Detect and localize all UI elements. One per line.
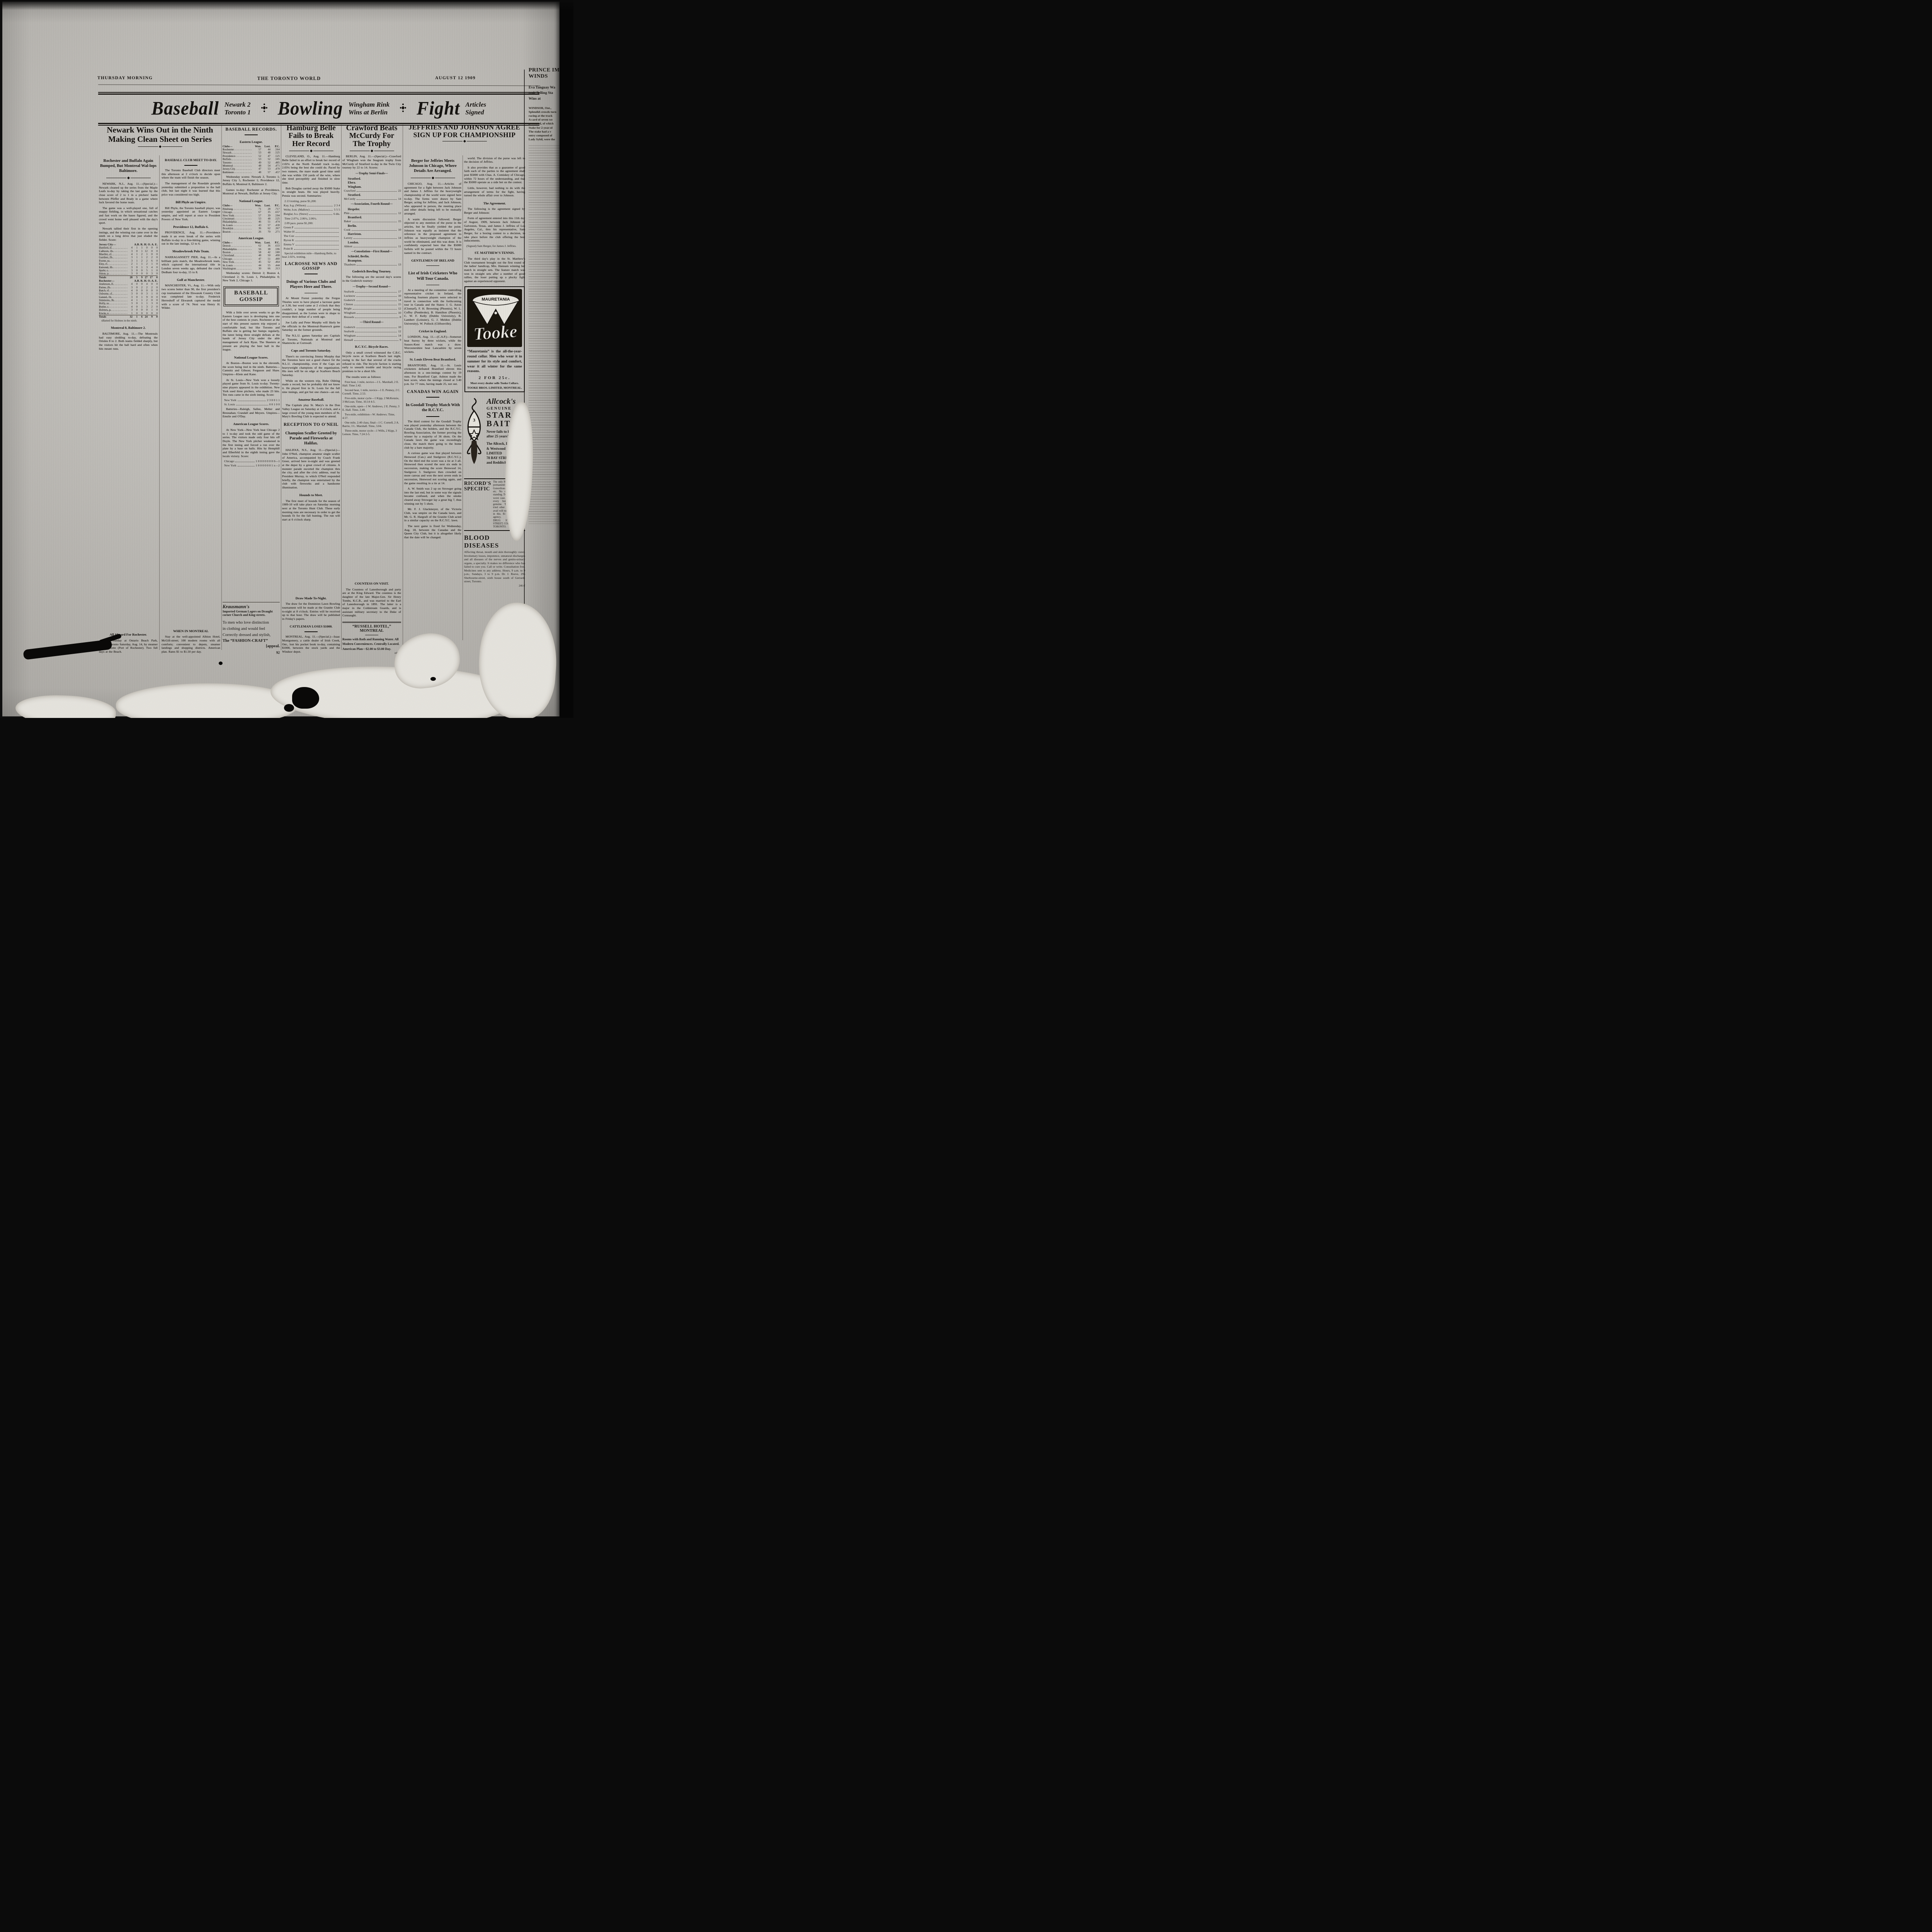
column-3: Hamburg BelleFails to BreakHer RecordCLE… xyxy=(282,124,340,655)
rink-town: Brantford. xyxy=(348,216,401,219)
ad-krausmann-line: Imported German Lagers on Draught xyxy=(223,610,280,613)
masthead-rule xyxy=(98,85,540,86)
article-paragraph: Only a small crowd witnessed the C.B.C. … xyxy=(342,351,401,373)
score-value: 8 xyxy=(400,315,401,319)
totals-stat: 24 xyxy=(143,315,148,319)
dot-leader xyxy=(238,401,266,401)
score-name: Cook xyxy=(344,228,350,231)
standings-table: Clubs—Won.Lost.P.C.Pittsburg 7128.717Chi… xyxy=(223,204,280,233)
totals-stat: 28 xyxy=(128,276,133,279)
article-deck: List of Irish Cricketers Who Will Tour C… xyxy=(405,271,461,281)
torn-headline-fragment: PRINCE IMPE xyxy=(529,67,562,73)
result-line: First heat, 1 mile, novice—1 L. Marshall… xyxy=(342,380,401,387)
score-row: Welte, b.m. (Mallow)5 5 5 xyxy=(284,208,340,211)
dot-leader xyxy=(355,318,398,318)
section-subhead: National League Scores. xyxy=(224,355,278,359)
score-name: McCurdy xyxy=(344,197,355,201)
standings-table: Clubs—Won.Lost.P.C.Rochester 5744.564New… xyxy=(223,145,280,174)
score-value: 6 dis. xyxy=(333,212,340,216)
player-stat: 0 xyxy=(153,272,158,276)
score-value: 14 xyxy=(398,236,401,240)
headline-newark-line1: Newark Wins Out in the Ninth xyxy=(98,126,222,134)
article-paragraph: BALTIMORE, Aug. 11.—The Montreals had ea… xyxy=(99,332,158,350)
article-headline-line: Fails to Break xyxy=(282,132,340,140)
ink-blot xyxy=(219,662,223,665)
article-paragraph: The following is the agreement signed by… xyxy=(464,207,525,214)
ad-russell-body: Rooms with Bath and Running Water. All M… xyxy=(342,637,401,651)
banner-score-line: Wingham Rink xyxy=(349,101,390,109)
score-row: Wingham10 xyxy=(344,311,401,315)
article-paragraph: At Boston—Boston won in the eleventh, th… xyxy=(223,361,280,376)
score-name: Goderich xyxy=(344,298,355,302)
article-paragraph: The Capitals play St. Mary's in the Don … xyxy=(282,403,340,418)
ad-krausmann: Krausmann'sImported German Lagers on Dra… xyxy=(223,602,280,617)
divider-dash xyxy=(342,150,401,152)
score-row: McCurdy14 xyxy=(344,197,401,201)
totals-stat: 6 xyxy=(138,315,143,319)
article-deck: Doings of Various Clubs and Players Here… xyxy=(283,279,339,289)
column-rule xyxy=(403,124,403,650)
divider-dash xyxy=(282,150,340,152)
article-paragraph: While on the western trip, Rube Oldring … xyxy=(282,379,340,394)
result-line: One-mile, open—1 W. Andrews, 2 E. Penny,… xyxy=(342,405,401,412)
score-row: Thauburn13 xyxy=(344,263,401,266)
score-row: Clinton15 xyxy=(344,303,401,306)
torn-body-line: Splendid crowds turn xyxy=(529,110,562,114)
ad-ricord-title-line: SPECIFIC xyxy=(464,486,491,492)
bracket-label: —Third Round— xyxy=(342,320,401,324)
score-name: Lavery xyxy=(344,236,352,240)
article-paragraph: The first meet of hounds for the season … xyxy=(282,499,340,522)
score-row: Goderich14 xyxy=(344,298,401,302)
result-line: Time 2.07¼, 2.06¼, 2.06¼. xyxy=(282,217,340,220)
article-deck: Champion Sculler Greeted by Parade and F… xyxy=(283,431,339,446)
article-paragraph: The N.L.U. games Saturday are: Capitals … xyxy=(282,334,340,345)
score-name: Wingham xyxy=(344,334,355,337)
score-value: 14 xyxy=(398,197,401,201)
score-name: Byron K xyxy=(284,238,294,242)
score-row: Cook10 xyxy=(344,228,401,231)
boxscore-totals: Totals32162490 xyxy=(99,315,158,319)
section-subhead: WHEN IN MONTREAL xyxy=(163,629,219,633)
boxscore-table: Hanford, lf. 411000Calhoun, 1b. 3011200M… xyxy=(99,246,158,279)
svg-text:3: 3 xyxy=(473,417,475,423)
article-paragraph: Newark tallied their first in the openin… xyxy=(99,227,158,242)
article-paragraph: NARRAGANSETT PIER, Aug. 11.—In a brillia… xyxy=(162,255,220,274)
section-subhead: GENTLEMEN OF IRELAND xyxy=(406,259,460,262)
article-headline-line: McCurdy For xyxy=(342,132,401,140)
bracket-label: —Trophy Semi-Finals— xyxy=(342,172,401,175)
score-value: 17 xyxy=(398,290,401,293)
standings-row: Brooklyn 3662.367 xyxy=(223,227,280,230)
dot-leader xyxy=(357,336,397,337)
banner-score-line: Wins at Berlin xyxy=(349,109,390,116)
score-value: 2 3 4 xyxy=(334,204,340,207)
rink-town: London. xyxy=(348,241,401,244)
ad-tag: ed-7tf xyxy=(342,651,401,655)
dot-leader xyxy=(235,462,255,462)
totals-stat: 17 xyxy=(148,276,153,279)
section-subhead: St. Louis Eleven Beat Brantford. xyxy=(406,357,460,361)
section-subhead: Hounds to Meet. xyxy=(284,493,338,497)
banner-section: BaseballNewark 2Toronto 1 xyxy=(151,100,251,118)
article-paragraph: The following are the second day's score… xyxy=(342,275,401,282)
dot-leader xyxy=(357,265,397,265)
score-row: Wingham14 xyxy=(344,334,401,337)
article-paragraph: It also provides that as a guarantee of … xyxy=(464,166,525,184)
article-paragraph: Stay at the well-appointed Albion Hotel,… xyxy=(162,635,220,653)
banner-section: FightArticlesSigned xyxy=(417,100,486,118)
score-value: 10 xyxy=(398,325,401,329)
score-row: New York2 3 0 0 1 1 xyxy=(224,398,280,402)
headline-newark-line2: Making Clean Sheet on Series xyxy=(98,135,222,144)
section-rule xyxy=(365,635,378,636)
article-paragraph: The Countess of Lanesborough and party a… xyxy=(342,588,401,617)
section-subhead: Eastern League. xyxy=(224,140,278,144)
banner-section-title: Fight xyxy=(417,99,460,118)
torn-deck-fragment: Eva Tanguay Watroit Selling StaWins at xyxy=(529,85,562,102)
score-name: Emma V xyxy=(284,243,294,246)
article-paragraph: BRANTFORD, Aug. 11.—St. Louis cricketers… xyxy=(404,364,461,386)
score-name: Seaforth xyxy=(344,330,354,333)
score-row: Brussels8 xyxy=(344,315,401,319)
torn-body-fragment: WINDSOR, Ont.,Splendid crowds turnracing… xyxy=(529,106,562,141)
score-name: Burglar, b.s. (Snow) xyxy=(284,212,308,216)
result-line: Five-mile, motor cycle—1 Kipp, 2 McKenzi… xyxy=(342,396,401,403)
score-value: 11 xyxy=(398,245,401,248)
diamond-dots-ornament xyxy=(261,103,268,115)
article-paragraph: LONDON, Aug. 11.—(C.A.P.)—Somerset beat … xyxy=(404,335,461,354)
score-row: Crawford22 xyxy=(344,189,401,192)
score-value: 14 xyxy=(398,298,401,302)
ad-tooke-price: 2 FOR 25c. xyxy=(467,376,522,380)
film-black-band xyxy=(560,0,573,718)
totals-stat: 1 xyxy=(133,315,138,319)
score-name: Phin xyxy=(344,211,349,215)
score-name: Walter H xyxy=(284,230,294,233)
torn-headline-fragment: WINDS xyxy=(529,73,562,80)
score-value: 10 xyxy=(398,294,401,298)
article-paragraph: At New York—New York beat Chicago 2 to 1… xyxy=(223,428,280,458)
score-name: St. Louis xyxy=(224,403,235,406)
team-stat: 48 xyxy=(252,171,261,174)
banner-section-score: Wingham RinkWins at Berlin xyxy=(349,101,390,116)
score-row: Seaforth12 xyxy=(344,330,401,333)
torn-body-line: The stake had a v xyxy=(529,130,562,134)
score-name: New York xyxy=(224,464,236,467)
score-name: Chicago xyxy=(224,459,234,463)
ad-tooke-firm: TOOKE BROS. LIMITED, MONTREAL. xyxy=(467,386,522,389)
section-subhead: BASEBALL CLUB MEET TO-DAY. xyxy=(163,158,219,162)
score-value: 9 xyxy=(400,338,401,342)
unreadable-text-texture xyxy=(529,145,562,524)
torn-body-line: A card of seven we xyxy=(529,118,562,122)
torn-column-fragment: PRINCE IMPEWINDSEva Tanguay Watroit Sell… xyxy=(529,67,562,647)
article-paragraph: Bob Douglas carried away the $5000 Stake… xyxy=(282,187,340,198)
score-name: New York xyxy=(224,398,236,402)
article-paragraph: At St. Louis—New York won a loosely play… xyxy=(223,378,280,397)
score-value: 1 0 0 0 0 0 0 0 0—1 xyxy=(256,459,280,463)
section-subhead: Montreal 8, Baltimore 2. xyxy=(100,326,156,330)
section-subhead: R.C.Y.C. Bicycle Races. xyxy=(344,345,400,349)
totals-stat: 0 xyxy=(153,276,158,279)
result-line: 2.09 pace, purse $1,200: xyxy=(282,221,340,225)
dot-leader xyxy=(296,245,339,245)
score-name: Kay, b.g. (Wilson) xyxy=(284,204,306,207)
article-paragraph: Joe Lally and Peter Murphy will likely b… xyxy=(282,321,340,332)
dot-leader xyxy=(311,210,333,211)
score-value: 15 xyxy=(398,303,401,306)
newspaper-page: THURSDAY MORNING THE TORONTO WORLD AUGUS… xyxy=(2,2,561,716)
torn-body-line: WINDSOR, Ont., xyxy=(529,106,562,110)
standings-row: Philadelphia 5638.596 xyxy=(223,248,280,251)
banner-score-line: Signed xyxy=(465,109,486,116)
banner-section-title: Baseball xyxy=(151,99,219,118)
section-rule xyxy=(426,397,439,398)
section-rule xyxy=(304,293,318,294)
column-2: BASEBALL RECORDS.Eastern League.Clubs—Wo… xyxy=(223,124,280,655)
score-value: 1 0 0 0 0 0 0 1 x—2 xyxy=(256,464,280,467)
dot-leader xyxy=(307,206,333,206)
ad-krausmann-line: corner Church and King-streets. xyxy=(223,613,280,617)
dot-leader xyxy=(294,228,339,228)
table-footnote: xBatted for Holmes in the ninth. xyxy=(99,319,158,322)
dot-leader xyxy=(294,249,339,250)
article-paragraph: At Mount Forest yesterday the Fergus Thi… xyxy=(282,296,340,319)
result-line: (Signed) Sam Berger, for James J. Jeffri… xyxy=(464,244,525,248)
score-value: 12 xyxy=(398,307,401,310)
standings-row: Providence 5247.525 xyxy=(223,155,280,158)
score-name: Crawford xyxy=(344,189,355,192)
banner-section-score: Newark 2Toronto 1 xyxy=(224,101,251,116)
ink-blot xyxy=(430,677,436,681)
article-paragraph: The game was a well-played one, full of … xyxy=(99,206,158,225)
column-4: Crawford BeatsMcCurdy ForThe TrophyBERLI… xyxy=(342,124,401,655)
ad-fashion-tail: [appeal. xyxy=(223,644,280,648)
article-paragraph: With a little over seven weeks to go the… xyxy=(223,311,280,352)
dot-leader xyxy=(295,241,339,241)
totals-stat: 5 xyxy=(133,276,138,279)
article-paragraph: The Toronto Baseball Club directors meet… xyxy=(162,168,220,180)
section-subhead: Bill Phyle an Umpire. xyxy=(163,200,219,204)
score-row: Byron K xyxy=(284,238,340,242)
score-name: Abbott xyxy=(344,245,352,248)
column-rule xyxy=(341,124,342,650)
score-row: Chicago1 0 0 0 0 0 0 0 0—1 xyxy=(224,459,280,463)
dot-leader xyxy=(356,296,397,297)
ad-tooke-collar: MAURETANIATooke“Mauretania” is the all-t… xyxy=(464,286,525,392)
ad-fashion-line: To men who love distinction xyxy=(223,620,280,626)
team-stat: 57 xyxy=(261,171,270,174)
score-name: Seaforth xyxy=(344,290,354,293)
dot-leader xyxy=(295,236,339,237)
diamond-dots-ornament xyxy=(400,103,406,115)
article-paragraph: NEWARK, N.J., Aug. 11.—(Special.)—Newark… xyxy=(99,182,158,204)
team-stat: 70 xyxy=(261,230,270,233)
score-value: 10 xyxy=(398,311,401,315)
column-5: Berger for Jeffries Meets Johnson in Chi… xyxy=(404,155,461,655)
rink-town: Hespeler. xyxy=(348,207,401,211)
headline-newark: Newark Wins Out in the Ninth Making Clea… xyxy=(98,126,222,150)
article-paragraph: Batteries—Raleigh, Sallee, Melter and Br… xyxy=(223,407,280,418)
team-stat: 30 xyxy=(252,267,261,270)
totals-stat: 9 xyxy=(138,276,143,279)
article-paragraph: CLEVELAND, O., Aug. 11.—Hamburg Belle fa… xyxy=(282,155,340,184)
ad-russell-hotel: “RUSSELL HOTEL,” MONTREALRooms with Bath… xyxy=(342,622,401,655)
dot-leader xyxy=(238,466,255,466)
score-name: Lucknow xyxy=(344,294,355,298)
score-value: 13 xyxy=(398,263,401,266)
torn-body-line: Lady Sybil, were the xyxy=(529,138,562,141)
dot-leader xyxy=(354,238,397,239)
standings-table: Clubs—Won.Lost.P.C.Detroit 6236.633Phila… xyxy=(223,241,280,270)
ad-fashion-craft: To men who love distinctionin clothing a… xyxy=(223,620,280,655)
article-paragraph: Games to-day: Rochester at Providence, M… xyxy=(223,188,280,196)
team-name: Baltimore xyxy=(223,171,252,174)
article-deck: Rochester and Buffalo Again Bumped, But … xyxy=(100,158,157,173)
article-paragraph: The next game is fixed for Wednesday, Au… xyxy=(404,524,461,539)
article-paragraph: The draw for the Dominion Lawn Bowling t… xyxy=(282,602,340,621)
article-paragraph: The results were as follows: xyxy=(342,375,401,379)
section-subhead: All Aboard For Rochester. xyxy=(100,633,156,636)
score-name: Welte, b.m. (Mallow) xyxy=(284,208,310,211)
rink-town: Wingham. xyxy=(348,185,401,189)
torn-body-line: racing at the track xyxy=(529,114,562,118)
rink-town: Elora. xyxy=(348,181,401,184)
dot-leader xyxy=(352,230,397,231)
score-row: Seaforth17 xyxy=(344,290,401,293)
section-subhead: COUNTESS ON VISIT. xyxy=(344,582,400,585)
result-line: One mile, 2.40 class, final—1 C. Cornell… xyxy=(342,421,401,428)
article-paragraph: Wednesday scores: Newark 2, Toronto 1; J… xyxy=(223,175,280,186)
standings-row: Washington 3066.313 xyxy=(223,267,280,270)
section-subhead: National League. xyxy=(224,199,278,203)
score-name: Green P xyxy=(284,226,293,229)
boxscore-table: Anderson, lf. 400400Pattee, 2b. 302220Ba… xyxy=(99,282,158,318)
ad-key-number: 92 xyxy=(223,651,280,655)
score-row: Emma V xyxy=(284,243,340,246)
ad-blood-body: Affecting throat, mouth and skin thoroug… xyxy=(464,550,525,583)
banner-section-title: Bowling xyxy=(278,99,343,118)
column-1b: BASEBALL CLUB MEET TO-DAY.The Toronto Ba… xyxy=(162,155,220,655)
score-row: New York1 0 0 0 0 0 0 1 x—2 xyxy=(224,464,280,467)
divider-dash xyxy=(99,177,158,179)
banner-score-line: Newark 2 xyxy=(224,101,251,109)
torn-deck-line: Eva Tanguay Wa xyxy=(529,85,562,90)
torn-body-line: presented, of which xyxy=(529,122,562,126)
player-stat: 0 xyxy=(143,272,148,276)
article-paragraph: MANCHESTER, Vt., Aug. 11.—With only two … xyxy=(162,284,220,310)
rink-town: Brampton. xyxy=(348,259,401,262)
score-name: Bright xyxy=(344,307,352,310)
boxscore-row: Erwin, x 100000 xyxy=(99,312,158,315)
article-paragraph: At a meeting of the committee controllin… xyxy=(404,288,461,326)
standings-row: Boston 2670.271 xyxy=(223,230,280,233)
article-headline-line: The Trophy xyxy=(342,140,401,148)
score-value: 12 xyxy=(398,211,401,215)
bait-illustration: 3 xyxy=(464,398,484,473)
result-line: Special exhibition mile—Hamburg Belle, t… xyxy=(282,252,340,259)
rink-town: Schiedel, Berlin. xyxy=(348,255,401,258)
section-subhead: Caps and Toronto Saturday. xyxy=(284,349,338,352)
score-row: Hensall9 xyxy=(344,338,401,342)
section-subhead: Golf at Manchester. xyxy=(163,278,219,282)
article-paragraph: Bill Phyle, the Toronto baseball player,… xyxy=(162,206,220,221)
team-name: Washington xyxy=(223,267,252,270)
ad-fashion-line: The “FASHION-CRAFT” xyxy=(223,638,280,644)
rink-town: Stratford. xyxy=(348,193,401,197)
player-name: Sitton, p. xyxy=(99,272,128,276)
headline-jeffries-line1: JEFFRIES AND JOHNSON AGREE xyxy=(403,124,526,131)
score-value: 12 xyxy=(398,330,401,333)
score-name: Clinton xyxy=(344,303,353,306)
article-headline: Hamburg BelleFails to BreakHer Record xyxy=(282,124,340,148)
torn-deck-line: troit Selling Sta xyxy=(529,90,562,96)
section-rule xyxy=(426,285,439,286)
ad-krausmann-name: Krausmann's xyxy=(223,604,280,610)
team-stat: 66 xyxy=(261,267,270,270)
dot-leader xyxy=(236,405,268,405)
headline-jeffries: JEFFRIES AND JOHNSON AGREE SIGN UP FOR C… xyxy=(403,124,526,144)
banner-score-line: Toronto 1 xyxy=(224,109,251,116)
divider-dash xyxy=(404,177,461,179)
section-subhead: Meadowbrook Polo Team. xyxy=(163,249,219,253)
score-row: Burglar, b.s. (Snow)6 dis. xyxy=(284,212,340,216)
score-row: Abbott11 xyxy=(344,245,401,248)
score-value: 14 xyxy=(398,334,401,337)
section-subhead: American League. xyxy=(224,236,278,240)
score-name: Thauburn xyxy=(344,263,355,266)
score-value: 10 xyxy=(398,228,401,231)
column-rule xyxy=(281,124,281,650)
ad-ricord-title: RICORD'SSPECIFIC xyxy=(464,481,491,529)
ad-blood-diseases: BLOOD DISEASESAffecting throat, mouth an… xyxy=(464,533,525,587)
dot-leader xyxy=(357,313,397,314)
result-line: 2.13 trotting, purse $1,200: xyxy=(282,199,340,203)
totals-stat: 9 xyxy=(148,315,153,319)
dot-leader xyxy=(357,199,397,200)
result-line: Three-mile, motor cycle—1 Wills, 2 Kipp,… xyxy=(342,429,401,436)
section-rule xyxy=(304,631,318,632)
article-paragraph: Little, however, had nothing to do with … xyxy=(464,186,525,197)
score-row: Green P xyxy=(284,226,340,229)
score-row: Point B xyxy=(284,247,340,250)
article-paragraph: A warm discussion followed. Berger objec… xyxy=(404,218,461,255)
section-subhead: Amateur Baseball. xyxy=(284,398,338,401)
article-paragraph: PROVIDENCE, Aug. 11.—Providence made it … xyxy=(162,231,220,246)
section-subhead: CATTLEMAN LOSES $1000. xyxy=(284,624,338,628)
torn-body-line: entry composed of xyxy=(529,134,562,138)
section-subhead: Goderich Bowling Tourney. xyxy=(344,269,400,273)
column-6: world. The division of the purse was lef… xyxy=(464,155,525,640)
team-stat: .313 xyxy=(270,267,280,270)
score-name: Point B xyxy=(284,247,293,250)
dot-leader xyxy=(355,292,397,293)
article-headline-line: Crawford Beats xyxy=(342,124,401,132)
boxscore-row: Sitton, p. 300030 xyxy=(99,272,158,276)
score-value: 5 5 5 xyxy=(334,208,340,211)
svg-text:Tooke: Tooke xyxy=(473,321,518,344)
svg-text:MAURETANIA: MAURETANIA xyxy=(481,297,510,302)
standings-header: Clubs—Won.Lost.P.C. xyxy=(223,241,280,244)
bracket-label: —Association, Fourth Round— xyxy=(342,202,401,206)
headline-divider xyxy=(98,146,222,148)
player-stat: 3 xyxy=(128,272,133,276)
banner-section: BowlingWingham RinkWins at Berlin xyxy=(278,100,390,118)
ad-fashion-line: in clothing and would feel xyxy=(223,626,280,632)
score-value: 0 0 1 0 0 xyxy=(269,403,280,406)
section-title: LACROSSE NEWS AND GOSSIP xyxy=(282,262,340,271)
